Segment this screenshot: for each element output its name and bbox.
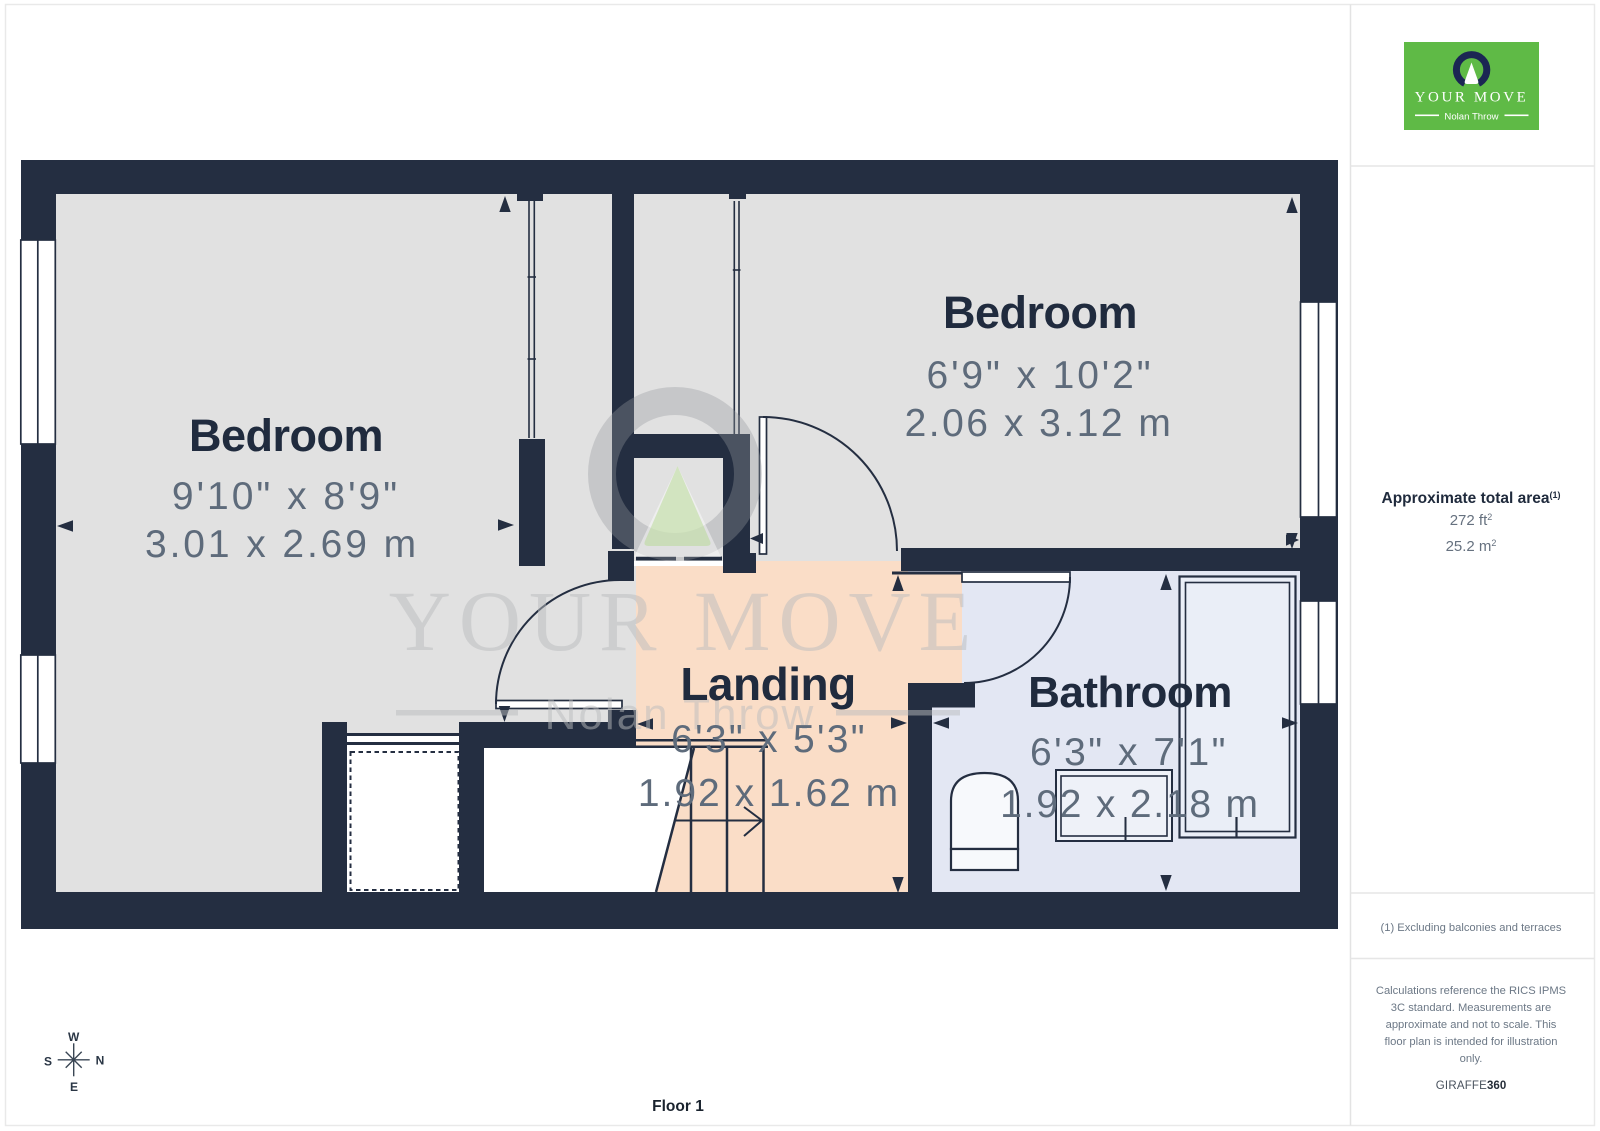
svg-text:GIRAFFE360: GIRAFFE360 <box>1436 1080 1506 1092</box>
svg-text:Bedroom: Bedroom <box>189 410 383 461</box>
svg-text:Floor 1: Floor 1 <box>652 1098 704 1115</box>
svg-text:6'9" x 10'2": 6'9" x 10'2" <box>926 354 1153 397</box>
svg-text:Bathroom: Bathroom <box>1028 668 1232 717</box>
svg-text:9'10" x 8'9": 9'10" x 8'9" <box>172 475 400 518</box>
svg-text:3.01 x 2.69 m: 3.01 x 2.69 m <box>145 523 419 566</box>
svg-text:W: W <box>68 1030 80 1044</box>
svg-text:6'3" x 7'1": 6'3" x 7'1" <box>1030 731 1228 774</box>
svg-text:Approximate total area(1): Approximate total area(1) <box>1382 490 1561 507</box>
svg-text:N: N <box>96 1054 105 1068</box>
svg-text:2.06 x 3.12 m: 2.06 x 3.12 m <box>905 402 1174 445</box>
svg-text:Landing: Landing <box>680 658 855 710</box>
svg-text:Nolan Throw: Nolan Throw <box>1444 112 1498 123</box>
svg-text:only.: only. <box>1460 1053 1483 1065</box>
svg-text:S: S <box>44 1055 52 1069</box>
svg-text:approximate and not to scale.: approximate and not to scale. This <box>1386 1019 1557 1031</box>
svg-text:Calculations reference the RIC: Calculations reference the RICS IPMS <box>1376 985 1566 997</box>
svg-text:floor plan is intended for ill: floor plan is intended for illustration <box>1385 1036 1558 1048</box>
svg-text:25.2 m2: 25.2 m2 <box>1446 538 1497 555</box>
svg-text:272 ft2: 272 ft2 <box>1450 512 1493 529</box>
svg-text:(1) Excluding balconies and te: (1) Excluding balconies and terraces <box>1381 922 1562 934</box>
svg-text:Bedroom: Bedroom <box>943 287 1137 338</box>
svg-text:6'3" x 5'3": 6'3" x 5'3" <box>671 718 867 761</box>
svg-text:YOUR MOVE: YOUR MOVE <box>389 573 979 669</box>
svg-text:3C standard. Measurements are: 3C standard. Measurements are <box>1391 1002 1551 1014</box>
svg-text:1.92 x 1.62 m: 1.92 x 1.62 m <box>638 772 900 815</box>
svg-text:1.92 x 2.18 m: 1.92 x 2.18 m <box>1000 783 1260 826</box>
svg-text:E: E <box>70 1080 78 1094</box>
svg-text:YOUR MOVE: YOUR MOVE <box>1415 90 1529 106</box>
